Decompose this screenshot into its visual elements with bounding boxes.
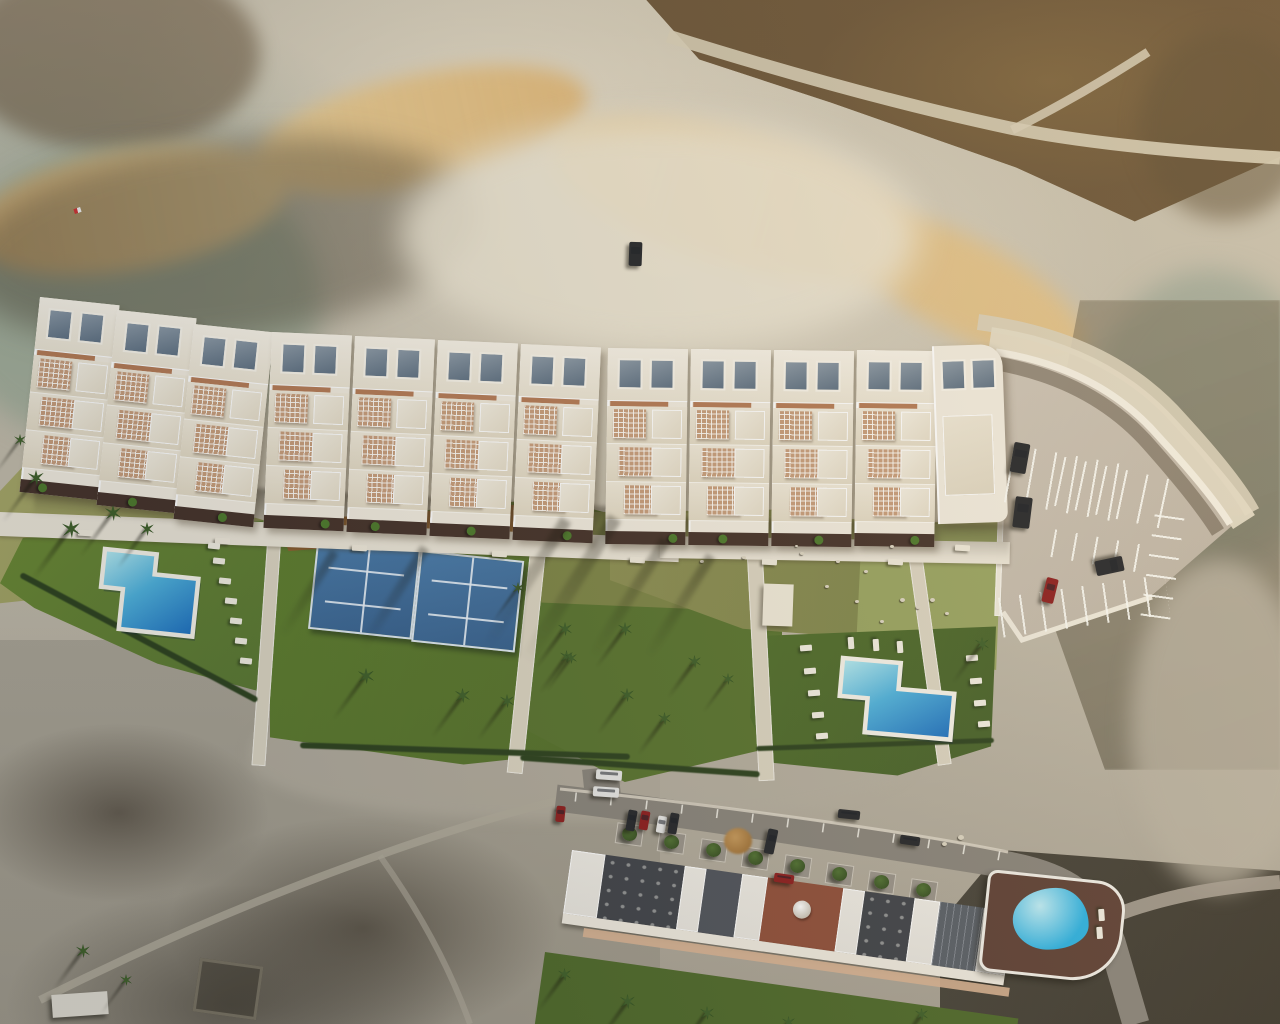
roof-skylight xyxy=(282,345,304,373)
balcony-lattice xyxy=(278,431,312,461)
building-module xyxy=(346,336,434,535)
terrace xyxy=(734,487,764,516)
balcony-lattice xyxy=(37,358,73,390)
boulder xyxy=(930,598,935,602)
balcony-lattice xyxy=(357,397,391,427)
terrace xyxy=(900,488,930,517)
terrace xyxy=(225,427,258,459)
terrace xyxy=(221,465,254,497)
terrace xyxy=(394,437,425,467)
terrace-row xyxy=(176,457,260,503)
sun-lounger xyxy=(1096,927,1103,939)
terrace xyxy=(67,438,100,470)
shrub xyxy=(467,526,476,535)
terrace-row xyxy=(515,440,597,481)
roof-skylight xyxy=(817,363,838,390)
terrace-row xyxy=(772,484,853,523)
balcony-lattice xyxy=(696,410,729,439)
terrace-row xyxy=(351,394,433,435)
pool-west xyxy=(97,549,201,637)
roof xyxy=(111,310,196,371)
roof xyxy=(270,332,352,388)
roof-skylight xyxy=(80,314,104,343)
terrace-row xyxy=(606,482,687,521)
patio-tree xyxy=(831,866,848,882)
roof-skylight xyxy=(900,363,921,390)
terrace-row xyxy=(689,445,770,484)
sun-lounger xyxy=(230,617,243,624)
parked-car xyxy=(593,786,620,798)
sun-lounger xyxy=(235,637,248,644)
pool-east xyxy=(837,658,957,740)
roof xyxy=(34,297,119,358)
terrace xyxy=(817,488,847,517)
roof-skylight xyxy=(868,362,889,389)
existing-pool-deck xyxy=(978,869,1128,985)
pickup-truck xyxy=(629,242,643,266)
garden-soil-strip xyxy=(605,531,685,545)
terrace xyxy=(734,449,764,478)
roof-skylight xyxy=(448,353,470,381)
balcony-lattice xyxy=(361,435,395,465)
patio-tree xyxy=(747,850,764,866)
balcony-lattice xyxy=(867,449,900,478)
aerial-photo xyxy=(0,0,1280,1024)
roof-skylight xyxy=(942,361,964,389)
townhouse-roof-dark xyxy=(856,891,914,961)
building-module xyxy=(429,340,517,539)
terrace-row xyxy=(349,432,431,473)
terrace xyxy=(817,450,847,479)
townhouse-roof-terra xyxy=(759,878,843,952)
sun-lounger xyxy=(873,639,880,651)
sun-lounger xyxy=(812,712,824,719)
terrace xyxy=(476,479,507,509)
balcony-lattice xyxy=(613,409,646,438)
shrub xyxy=(38,483,48,493)
terrace xyxy=(75,362,108,394)
terrace xyxy=(393,475,424,505)
terrace xyxy=(651,448,681,477)
balcony-lattice xyxy=(523,405,557,435)
sun-lounger xyxy=(213,557,226,564)
balcony-lattice xyxy=(191,385,227,417)
terrace-row xyxy=(432,436,514,477)
shrub xyxy=(128,497,138,507)
sun-lounger xyxy=(1098,909,1105,921)
terrace-row xyxy=(264,466,346,507)
terrace xyxy=(901,412,931,441)
terrace-row xyxy=(434,398,516,439)
terrace xyxy=(71,400,104,432)
roof xyxy=(436,340,518,396)
roof-skylight xyxy=(785,362,806,389)
sun-lounger xyxy=(978,721,990,728)
sun-lounger xyxy=(804,668,816,675)
bench xyxy=(492,551,507,558)
roof-skylight xyxy=(563,358,585,386)
white-shack xyxy=(51,991,108,1018)
roof-skylight xyxy=(48,310,72,339)
bench xyxy=(352,545,367,552)
front-patio xyxy=(825,862,855,887)
garden-soil-strip xyxy=(854,533,934,547)
terrace xyxy=(148,413,181,445)
terrace xyxy=(560,445,591,475)
parked-car xyxy=(555,806,566,823)
terrace xyxy=(396,399,427,429)
parked-car xyxy=(596,769,623,781)
shrub xyxy=(320,519,329,528)
terrace-row xyxy=(22,430,106,476)
terrace-row xyxy=(266,428,348,469)
patio-tree xyxy=(663,834,680,850)
patio-tree xyxy=(705,842,722,858)
roof xyxy=(856,350,937,404)
terrace-row xyxy=(856,408,937,447)
stone-ruin xyxy=(193,958,264,1020)
balcony-lattice xyxy=(527,443,561,473)
roof-skylight xyxy=(125,323,149,352)
sun-lounger xyxy=(974,700,986,707)
terrace-row xyxy=(99,443,183,489)
sun-lounger xyxy=(848,637,855,649)
building-module xyxy=(512,344,600,543)
sun-lounger xyxy=(225,597,238,604)
roof-dome xyxy=(792,899,812,919)
roof xyxy=(353,336,435,392)
terrace xyxy=(900,450,930,479)
roof-skylight xyxy=(651,361,672,388)
terrace xyxy=(559,483,590,513)
court-line xyxy=(360,545,371,633)
roof-skylight xyxy=(972,360,994,388)
patio-tree xyxy=(873,874,890,890)
terrace-row xyxy=(690,407,771,446)
boulder xyxy=(900,598,905,602)
roof-skylight xyxy=(234,341,258,370)
roof-skylight xyxy=(202,337,226,366)
building-module xyxy=(688,349,771,546)
existing-pool xyxy=(1012,886,1090,951)
sun-lounger xyxy=(208,542,221,549)
balcony-lattice xyxy=(114,371,150,403)
roof-skylight xyxy=(480,354,502,382)
garden-soil-strip xyxy=(688,532,768,546)
balcony-lattice xyxy=(274,393,308,423)
bench xyxy=(955,545,970,552)
terrace xyxy=(313,395,344,425)
bench xyxy=(888,559,903,566)
terrace xyxy=(651,486,681,515)
bench xyxy=(78,530,93,537)
roof-skylight xyxy=(314,346,336,374)
end-unit-terrace xyxy=(942,414,995,496)
building-module xyxy=(263,332,351,531)
terrace xyxy=(477,441,508,471)
balcony-lattice xyxy=(862,411,895,440)
terrace-row xyxy=(689,483,770,522)
building-end-unit xyxy=(932,344,1008,524)
terrace-row xyxy=(513,478,595,519)
terrace xyxy=(152,375,185,407)
sun-lounger xyxy=(816,733,828,740)
terrace-row xyxy=(773,408,854,447)
roof-skylight xyxy=(365,349,387,377)
balcony-lattice xyxy=(701,448,734,477)
building-module xyxy=(605,348,688,545)
terrace xyxy=(562,407,593,437)
court-line xyxy=(463,558,474,646)
sun-lounger xyxy=(897,641,904,653)
bench xyxy=(630,557,645,564)
balcony-lattice xyxy=(193,424,229,456)
autumn-tree xyxy=(724,828,752,854)
terrace-row xyxy=(268,390,350,431)
garden-soil-strip xyxy=(771,533,851,547)
building-module xyxy=(771,350,854,547)
roof xyxy=(773,350,854,404)
roof-skylight xyxy=(397,350,419,378)
shrub xyxy=(217,513,227,523)
balcony-lattice xyxy=(784,449,817,478)
roof xyxy=(690,349,771,403)
roof xyxy=(188,324,273,385)
sun-lounger xyxy=(219,577,232,584)
terrace xyxy=(144,451,177,483)
shrub xyxy=(910,536,919,545)
balcony-lattice xyxy=(440,401,474,431)
sun-lounger xyxy=(970,678,982,685)
terrace-row xyxy=(855,446,936,485)
terrace xyxy=(479,403,510,433)
roof xyxy=(519,344,601,400)
roof-skylight xyxy=(702,361,723,388)
townhouse-roof-dark xyxy=(597,855,685,930)
terrace-row xyxy=(606,444,687,483)
sun-lounger xyxy=(240,657,253,664)
balcony-lattice xyxy=(779,411,812,440)
balcony-lattice xyxy=(444,439,478,469)
balcony-lattice xyxy=(39,397,75,429)
terrace-row xyxy=(855,484,936,523)
roof xyxy=(607,348,688,402)
terrace-row xyxy=(607,406,688,445)
terrace xyxy=(818,412,848,441)
patio-tree xyxy=(789,858,806,874)
boulder xyxy=(942,842,947,846)
shrub xyxy=(718,534,727,543)
terrace-row xyxy=(517,402,599,443)
boulder xyxy=(958,835,964,840)
terrace xyxy=(229,389,262,421)
shrub xyxy=(371,522,380,531)
terrace xyxy=(311,433,342,463)
roof-skylight xyxy=(157,327,181,356)
terrace xyxy=(735,411,765,440)
roof-skylight xyxy=(619,360,640,387)
building-module xyxy=(854,350,937,547)
balcony-lattice xyxy=(116,410,152,442)
sun-lounger xyxy=(800,645,812,652)
patio-tree xyxy=(915,882,932,898)
roof-skylight xyxy=(734,362,755,389)
terrace xyxy=(652,410,682,439)
roof-skylight xyxy=(531,357,553,385)
sun-lounger xyxy=(808,690,820,697)
bench xyxy=(762,559,777,566)
shrub xyxy=(814,536,823,545)
terrace-row xyxy=(430,474,512,515)
terrace xyxy=(310,471,341,501)
terrace-row xyxy=(772,446,853,485)
terrace-row xyxy=(347,470,429,511)
balcony-lattice xyxy=(618,447,651,476)
